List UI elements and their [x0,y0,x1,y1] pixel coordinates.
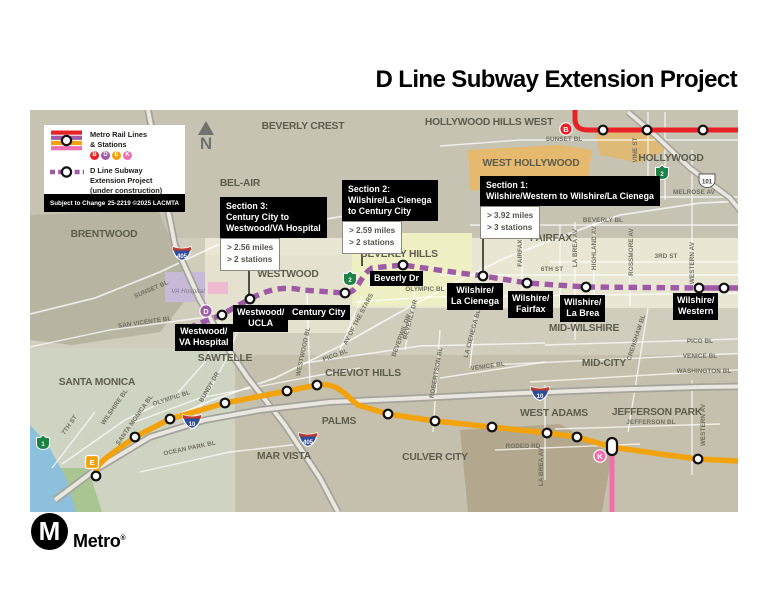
svg-text:JEFFERSON PARK: JEFFERSON PARK [612,407,703,418]
svg-text:JEFFERSON BL: JEFFERSON BL [626,419,675,426]
svg-text:10: 10 [537,394,544,400]
svg-text:PICO BL: PICO BL [687,338,713,345]
section-1-header: Section 1: Wilshire/Western to Wilshire/… [480,176,660,206]
section-2-callout: Section 2: Wilshire/La Cienega to Centur… [342,180,438,254]
b-line-legend-badge: B [90,151,99,160]
station-label-wilshire-la-brea: Wilshire/La Brea [560,295,605,322]
map-code-label: 25-2219 ©2025 LACMTA [108,200,179,207]
svg-text:MID-CITY: MID-CITY [582,358,626,369]
k-line-legend-badge: K [123,151,132,160]
d-line-legend-badge: D [101,151,110,160]
k-line-badge-letter: K [597,452,603,461]
svg-text:WEST ADAMS: WEST ADAMS [520,408,588,419]
svg-text:VENICE BL: VENICE BL [683,353,718,360]
b-line-badge-letter: B [563,125,569,134]
subject-to-change-label: Subject to Change [50,200,105,207]
svg-text:MID-WILSHIRE: MID-WILSHIRE [549,323,620,334]
section-3-stats: > 2.56 miles > 2 stations [220,238,280,271]
transfer-station-capsule [607,438,617,455]
section-1-stats: > 3.92 miles > 3 stations [480,206,540,239]
metro-logo-icon: M [31,513,68,550]
svg-text:405: 405 [303,440,314,446]
svg-text:WASHINGTON BL: WASHINGTON BL [677,368,732,375]
svg-text:HOLLYWOOD: HOLLYWOOD [638,153,703,164]
svg-text:BRENTWOOD: BRENTWOOD [71,229,138,240]
svg-text:MELROSE AV: MELROSE AV [673,189,716,196]
svg-text:WEST HOLLYWOOD: WEST HOLLYWOOD [483,158,580,169]
svg-text:101: 101 [702,180,713,186]
svg-text:SAWTELLE: SAWTELLE [198,353,253,364]
section-3-header: Section 3: Century City to Westwood/VA H… [220,197,327,238]
north-arrow: N [193,121,219,154]
svg-text:WESTWOOD: WESTWOOD [257,269,318,280]
legend-line-badges: B D E K [90,151,147,160]
section-1-callout: Section 1: Wilshire/Western to Wilshire/… [480,176,660,239]
extension-legend-label: D Line Subway Extension Project (under c… [90,166,162,195]
svg-text:LA BREA AV: LA BREA AV [538,447,545,486]
svg-text:SANTA MONICA: SANTA MONICA [59,377,136,388]
e-line-badge-letter: E [89,458,94,467]
sr1-shield: 1 [37,435,50,450]
svg-text:VA Hospital: VA Hospital [171,288,205,295]
legend: Metro Rail Lines & Stations B D E K D Li… [44,125,185,194]
svg-text:HOLLYWOOD HILLS WEST: HOLLYWOOD HILLS WEST [425,117,554,128]
svg-text:BEL-AIR: BEL-AIR [220,178,261,189]
svg-text:6TH ST: 6TH ST [541,266,563,273]
metro-logo: M Metro® [31,513,125,550]
svg-text:CULVER CITY: CULVER CITY [402,452,468,463]
station-label-wilshire-la-cienega: Wilshire/La Cienega [447,283,503,310]
extension-legend-graphic [50,166,84,178]
subject-to-change-bar: Subject to Change 25-2219 ©2025 LACMTA [44,194,185,212]
north-label: N [193,135,219,154]
station-label-westwood-ucla: Westwood/UCLA [233,305,288,332]
svg-text:SUNSET BL: SUNSET BL [546,136,583,143]
svg-text:10: 10 [189,422,196,428]
metro-wordmark: Metro® [73,532,125,550]
north-arrow-icon [198,121,214,135]
station-label-wilshire-fairfax: Wilshire/Fairfax [508,291,553,318]
sr2-shield-west: 2 [344,271,357,286]
station-label-westwood-va-hospital: Westwood/VA Hospital [175,324,233,351]
e-line-legend-badge: E [112,151,121,160]
section-2-stats: > 2.59 miles > 2 stations [342,221,402,254]
svg-text:WESTERN AV: WESTERN AV [689,241,696,284]
station-label-beverly-dr: Beverly Dr [370,271,423,286]
section-2-header: Section 2: Wilshire/La Cienega to Centur… [342,180,438,221]
station-label-wilshire-western: Wilshire/Western [673,293,718,320]
station-label-century-city: Century City [288,305,350,320]
svg-text:OLYMPIC BL: OLYMPIC BL [405,286,444,293]
svg-text:CHEVIOT HILLS: CHEVIOT HILLS [325,368,401,379]
rail-lines-legend-label: Metro Rail Lines & Stations B D E K [90,130,147,160]
svg-text:MAR VISTA: MAR VISTA [257,451,312,462]
us101-shield: 101 [699,174,715,188]
svg-text:3RD ST: 3RD ST [655,253,678,260]
rail-lines-legend-graphic [50,130,84,153]
svg-text:PALMS: PALMS [322,416,357,427]
section-3-callout: Section 3: Century City to Westwood/VA H… [220,197,327,271]
map-canvas: B D E K 405 405 [0,0,768,593]
svg-text:RODEO RD: RODEO RD [506,443,541,450]
svg-text:405: 405 [177,254,188,260]
d-line-extension-map-page: D Line Subway Extension Project [0,0,768,593]
d-line-badge-letter: D [203,307,209,316]
svg-text:BEVERLY CREST: BEVERLY CREST [262,121,346,132]
